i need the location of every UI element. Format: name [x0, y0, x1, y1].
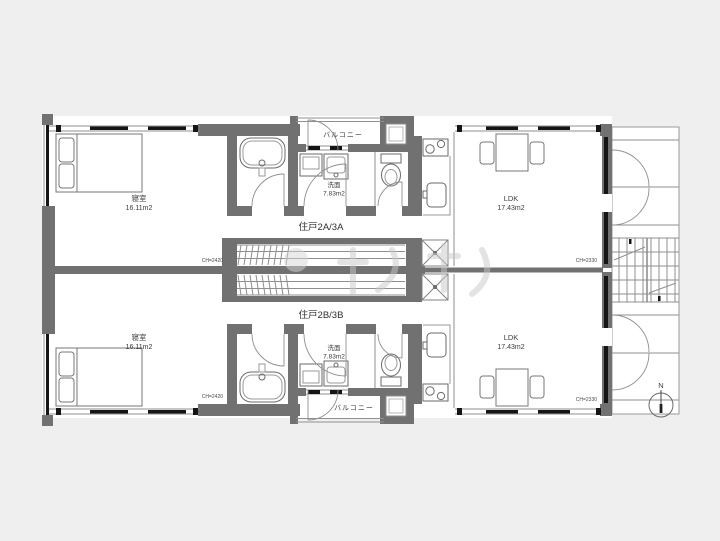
unit-label-2a3a: 住戸2A/3A: [299, 221, 345, 233]
ceiling-height-bedroom-2a: CH=2420: [202, 258, 223, 264]
floor-plan: 寝室 16.11m2 洗面 7.83m2 バルコニー LDK 17.43m2 住…: [0, 0, 720, 541]
washroom-label-2b: 洗面: [328, 343, 342, 352]
bedroom-label-2a: 寝室: [132, 193, 147, 203]
bedroom-area-2b: 16.11m2: [126, 344, 153, 351]
washroom-area-2a: 7.83m2: [323, 191, 345, 198]
bedroom-area-2a: 16.11m2: [126, 205, 153, 212]
washroom-area-2b: 7.83m2: [323, 354, 345, 361]
ceiling-height-bedroom-2b: CH=2420: [202, 394, 223, 400]
bedroom-label-2b: 寝室: [132, 332, 147, 342]
unit-label-2b3b: 住戸2B/3B: [299, 309, 344, 321]
balcony-label-2b: バルコニー: [334, 404, 374, 412]
ldk-label-2b: LDK: [504, 333, 519, 342]
balcony-label-2a: バルコニー: [323, 131, 363, 139]
ldk-area-2a: 17.43m2: [497, 205, 524, 212]
ceiling-height-ldk-2b: CH=2330: [576, 397, 597, 403]
floor-plan-svg: 寝室 16.11m2 洗面 7.83m2 バルコニー LDK 17.43m2 住…: [0, 0, 720, 541]
compass-north-label: N: [658, 381, 663, 390]
washroom-label-2a: 洗面: [328, 180, 342, 189]
ldk-area-2b: 17.43m2: [497, 344, 524, 351]
ceiling-height-ldk-2a: CH=2330: [576, 258, 597, 264]
ldk-label-2a: LDK: [504, 194, 519, 203]
